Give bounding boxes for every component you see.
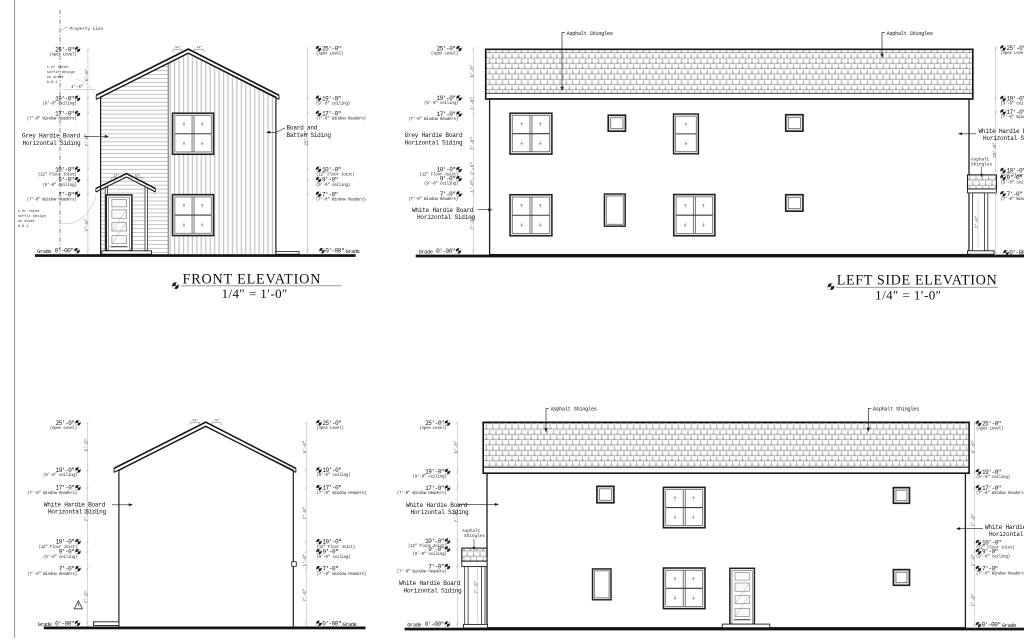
svg-text:Horizontal Siding: Horizontal Siding	[405, 139, 464, 146]
svg-text:on sheet: on sheet	[47, 75, 64, 80]
svg-text:17′-0″: 17′-0″	[56, 485, 75, 492]
svg-text:(9′-0″ ceiling): (9′-0″ ceiling)	[317, 473, 351, 478]
svg-text:17′-0″: 17′-0″	[425, 485, 444, 492]
svg-text:7′-6″: 7′-6″	[475, 581, 480, 594]
svg-text:25′-0″: 25′-0″	[982, 420, 1001, 427]
svg-text:(7′-0″ Window Headers): (7′-0″ Window Headers)	[27, 117, 77, 122]
svg-text:A-6.1: A-6.1	[47, 81, 58, 85]
svg-text:7′-6″: 7′-6″	[303, 589, 308, 602]
svg-text:25′-0″: 25′-0″	[1007, 45, 1024, 52]
svg-text:9′-0″: 9′-0″	[1007, 175, 1023, 182]
svg-text:(9′-0″ ceiling): (9′-0″ ceiling)	[43, 473, 77, 478]
svg-text:Asphalt Shingles: Asphalt Shingles	[567, 31, 613, 37]
svg-text:Shingles: Shingles	[464, 534, 485, 539]
svg-text:(7′-0″ Window Headers): (7′-0″ Window Headers)	[397, 491, 447, 496]
svg-text:17′-0″: 17′-0″	[55, 111, 74, 118]
svg-text:0′-00″: 0′-00″	[322, 620, 341, 627]
svg-text:10′-0″: 10′-0″	[55, 166, 74, 173]
svg-text:9′-0″: 9′-0″	[323, 549, 339, 556]
svg-text:(9′-0″ ceiling): (9′-0″ ceiling)	[316, 101, 350, 106]
svg-text:12″: 12″	[197, 45, 203, 49]
svg-text:12″: 12″	[114, 174, 120, 178]
svg-text:Horizontal Siding: Horizontal Siding	[983, 135, 1024, 142]
svg-text:19′-0″: 19′-0″	[55, 95, 74, 102]
svg-text:Asphalt Shingles: Asphalt Shingles	[887, 31, 933, 37]
svg-text:9′-0″: 9′-0″	[59, 549, 75, 556]
svg-text:1 hr rated: 1 hr rated	[18, 209, 40, 214]
svg-text:7′-0″: 7′-0″	[85, 219, 90, 232]
svg-text:(7′-0″ Window Headers): (7′-0″ Window Headers)	[27, 197, 77, 202]
svg-text:(9′-0″ ceiling): (9′-0″ ceiling)	[43, 101, 77, 106]
svg-text:12″: 12″	[193, 418, 199, 422]
svg-text:(Apex Level): (Apex Level)	[317, 426, 344, 431]
svg-text:19′-0″: 19′-0″	[323, 467, 342, 474]
svg-text:10′-0″: 10′-0″	[322, 166, 341, 173]
svg-text:6′-0″: 6′-0″	[470, 65, 475, 78]
svg-text:9′-0″: 9′-0″	[440, 176, 456, 183]
svg-text:7′-0″: 7′-0″	[303, 507, 308, 520]
svg-text:1′-0″: 1′-0″	[303, 554, 308, 567]
svg-text:17′-0″: 17′-0″	[437, 111, 456, 118]
svg-text:Batten Siding: Batten Siding	[287, 132, 332, 139]
svg-text:(7′-0″ Window Headers): (7′-0″ Window Headers)	[27, 572, 77, 577]
svg-text:soffit design: soffit design	[47, 70, 75, 75]
svg-text:7′-0″: 7′-0″	[58, 191, 74, 198]
svg-text:7′-0″: 7′-0″	[470, 137, 475, 150]
svg-text:Horizontal Siding: Horizontal Siding	[404, 587, 463, 594]
svg-text:Grade: Grade	[1002, 623, 1016, 629]
svg-text:10′-0″: 10′-0″	[982, 540, 1001, 547]
svg-text:7′-0″: 7′-0″	[972, 594, 977, 607]
svg-text:7′-0″: 7′-0″	[323, 566, 339, 573]
svg-text:19′-0″: 19′-0″	[437, 95, 456, 102]
svg-text:19′-0″: 19′-0″	[56, 467, 75, 474]
svg-text:(7′-0″ Window Headers): (7′-0″ Window Headers)	[27, 491, 77, 496]
svg-text:Grey Hardie Board: Grey Hardie Board	[405, 132, 464, 139]
svg-text:(9′-0″ ceiling): (9′-0″ ceiling)	[1001, 181, 1024, 186]
svg-text:19′-0″: 19′-0″	[322, 95, 341, 102]
svg-text:10′-0″: 10′-0″	[56, 539, 75, 546]
svg-text:(7′-0″ Window Headers): (7′-0″ Window Headers)	[1001, 115, 1024, 120]
svg-text:(7′-0″ Window Headers): (7′-0″ Window Headers)	[317, 491, 367, 496]
svg-text:6′-0″: 6′-0″	[85, 69, 90, 82]
svg-text:19′-0″: 19′-0″	[1007, 96, 1024, 103]
svg-text:25′-0″: 25′-0″	[56, 420, 75, 427]
svg-text:(9′-0″ ceiling): (9′-0″ ceiling)	[43, 183, 77, 188]
svg-text:White Hardie Board: White Hardie Board	[399, 580, 461, 587]
svg-text:(Apex Level): (Apex Level)	[1001, 51, 1024, 56]
svg-text:6′-0″: 6′-0″	[85, 439, 90, 452]
svg-text:17′-0″: 17′-0″	[322, 111, 341, 118]
svg-text:(7′-0″ Window Headers): (7′-0″ Window Headers)	[317, 572, 367, 577]
svg-text:Grade: Grade	[38, 622, 52, 628]
svg-text:White Hardie Board: White Hardie Board	[412, 207, 474, 214]
svg-text:1/4″ = 1′-0″: 1/4″ = 1′-0″	[222, 286, 288, 301]
svg-text:10′-0″: 10′-0″	[437, 167, 456, 174]
svg-text:0′-00″: 0′-00″	[436, 248, 455, 255]
svg-text:(Apex Level): (Apex Level)	[50, 426, 77, 431]
svg-text:19′-0″: 19′-0″	[982, 469, 1001, 476]
svg-text:1′-0″: 1′-0″	[470, 97, 475, 110]
svg-text:19′-0″: 19′-0″	[425, 469, 444, 476]
svg-text:7′-0″: 7′-0″	[322, 191, 338, 198]
svg-text:17′-0″: 17′-0″	[323, 485, 342, 492]
svg-text:0′-00″: 0′-00″	[1009, 250, 1024, 257]
svg-text:10′-0″: 10′-0″	[425, 538, 444, 545]
svg-text:(Apex Level): (Apex Level)	[316, 52, 343, 57]
svg-text:1/4″ = 1′-0″: 1/4″ = 1′-0″	[875, 288, 941, 303]
svg-text:0′-00″: 0′-00″	[325, 248, 344, 255]
svg-text:(7′-0″ Window Headers): (7′-0″ Window Headers)	[397, 570, 447, 575]
svg-text:10′-0″: 10′-0″	[323, 539, 342, 546]
svg-text:12″: 12″	[175, 45, 181, 49]
svg-text:(7′-0″ Window Headers): (7′-0″ Window Headers)	[408, 197, 458, 202]
svg-text:7′-0″: 7′-0″	[982, 566, 998, 573]
svg-text:25′-0″: 25′-0″	[55, 46, 74, 53]
svg-text:10′-0″: 10′-0″	[1007, 168, 1024, 175]
svg-text:25′-0″: 25′-0″	[425, 420, 444, 427]
svg-text:25′-0″: 25′-0″	[322, 46, 341, 53]
svg-text:9′-0″: 9′-0″	[428, 546, 444, 553]
svg-text:4′-6″: 4′-6″	[972, 441, 977, 454]
svg-text:LEFT SIDE ELEVATION: LEFT SIDE ELEVATION	[837, 273, 998, 289]
svg-text:7′-0″: 7′-0″	[59, 566, 75, 573]
svg-text:1′-0″: 1′-0″	[470, 180, 475, 193]
svg-text:Horizontal Siding: Horizontal Siding	[48, 509, 107, 516]
svg-text:Grade: Grade	[419, 250, 433, 256]
svg-text:(9′-0″ ceiling): (9′-0″ ceiling)	[1001, 102, 1024, 107]
svg-text:7′-0″: 7′-0″	[972, 514, 977, 527]
svg-text:(7′-0″ Window Headers): (7′-0″ Window Headers)	[976, 491, 1024, 496]
svg-text:(Apex Level): (Apex Level)	[49, 52, 76, 57]
svg-text:(9′-0″ ceiling): (9′-0″ ceiling)	[976, 555, 1010, 560]
svg-text:(7′-0″ Window Headers): (7′-0″ Window Headers)	[1001, 197, 1024, 202]
svg-text:9′-0″: 9′-0″	[58, 177, 74, 184]
svg-text:(Apex Level): (Apex Level)	[431, 52, 458, 57]
svg-text:White Hardie Board: White Hardie Board	[985, 524, 1024, 531]
svg-text:Horizontal Siding: Horizontal Siding	[989, 531, 1024, 538]
svg-text:17′-0″: 17′-0″	[982, 485, 1001, 492]
svg-text:7′-0″: 7′-0″	[428, 564, 444, 571]
svg-text:Horizontal Siding: Horizontal Siding	[411, 509, 470, 516]
svg-text:(9′-0″ ceiling): (9′-0″ ceiling)	[424, 101, 458, 106]
svg-text:6′-0″: 6′-0″	[454, 441, 459, 454]
svg-text:(7′-0″ Window Headers): (7′-0″ Window Headers)	[976, 572, 1024, 577]
svg-text:(9′-0″ ceiling): (9′-0″ ceiling)	[976, 475, 1010, 480]
svg-text:1 hr rated: 1 hr rated	[47, 65, 69, 70]
svg-text:9′-0″: 9′-0″	[982, 549, 998, 556]
svg-text:(9′-0″ ceiling): (9′-0″ ceiling)	[317, 555, 351, 560]
svg-text:9′-0″: 9′-0″	[322, 177, 338, 184]
svg-text:25′-0″: 25′-0″	[993, 142, 998, 157]
svg-text:17′-0″: 17′-0″	[1007, 109, 1024, 116]
svg-text:0′-00″: 0′-00″	[425, 621, 444, 628]
svg-text:(9′-0″ ceiling): (9′-0″ ceiling)	[413, 475, 447, 480]
svg-text:White Hardie Board: White Hardie Board	[979, 128, 1024, 135]
svg-text:Shingles: Shingles	[971, 163, 992, 168]
svg-text:25′-0″: 25′-0″	[323, 420, 342, 427]
svg-text:4′-6″: 4′-6″	[71, 85, 84, 90]
svg-text:(9′-0″ ceiling): (9′-0″ ceiling)	[424, 182, 458, 187]
svg-text:7′-0″: 7′-0″	[440, 191, 456, 198]
svg-text:Grey Hardie Board: Grey Hardie Board	[22, 133, 81, 140]
svg-text:(9′-0″ ceiling): (9′-0″ ceiling)	[413, 552, 447, 557]
svg-text:(9′-0″ ceiling): (9′-0″ ceiling)	[316, 183, 350, 188]
svg-text:Horizontal Siding: Horizontal Siding	[417, 214, 476, 221]
svg-text:0′-00″: 0′-00″	[55, 620, 74, 627]
svg-text:Asphalt Shingles: Asphalt Shingles	[873, 407, 919, 413]
svg-text:12″: 12″	[135, 174, 141, 178]
svg-text:(9′-0″ ceiling): (9′-0″ ceiling)	[43, 555, 77, 560]
svg-text:soffit design: soffit design	[18, 214, 46, 219]
svg-text:25′-0″: 25′-0″	[437, 46, 456, 53]
svg-text:0′-00″: 0′-00″	[982, 622, 1001, 629]
svg-text:4′-6″: 4′-6″	[303, 441, 308, 454]
svg-text:7′-0″: 7′-0″	[1007, 191, 1023, 198]
svg-text:Board and: Board and	[287, 124, 318, 131]
svg-text:Property Line: Property Line	[70, 27, 104, 32]
svg-text:Asphalt Shingles: Asphalt Shingles	[551, 407, 597, 413]
svg-text:Horizontal Siding: Horizontal Siding	[23, 140, 82, 147]
svg-text:2′-0″: 2′-0″	[470, 162, 475, 175]
svg-text:on sheet: on sheet	[18, 219, 35, 224]
svg-text:12″: 12″	[214, 418, 220, 422]
svg-text:7′-6″: 7′-6″	[975, 216, 980, 229]
svg-text:(Apex Level): (Apex Level)	[976, 427, 1003, 432]
svg-text:7′-0″: 7′-0″	[85, 591, 90, 604]
svg-text:(7′-0″ Window Headers): (7′-0″ Window Headers)	[316, 117, 366, 122]
svg-text:(7′-0″ Window Headers): (7′-0″ Window Headers)	[408, 117, 458, 122]
svg-text:(7′-0″ Window Headers): (7′-0″ Window Headers)	[316, 197, 366, 202]
svg-text:White Hardie Board: White Hardie Board	[406, 502, 468, 509]
svg-text:(Apex Level): (Apex Level)	[419, 426, 446, 431]
svg-text:7′-0″: 7′-0″	[85, 134, 90, 147]
svg-text:White Hardie Board: White Hardie Board	[44, 501, 106, 508]
svg-text:A-6.1: A-6.1	[18, 225, 29, 229]
svg-text:Grade: Grade	[407, 623, 421, 629]
svg-text:Grade: Grade	[346, 249, 360, 255]
svg-text:Grade: Grade	[37, 249, 51, 255]
svg-text:0′-00″: 0′-00″	[55, 248, 74, 255]
svg-text:Grade: Grade	[343, 622, 357, 628]
